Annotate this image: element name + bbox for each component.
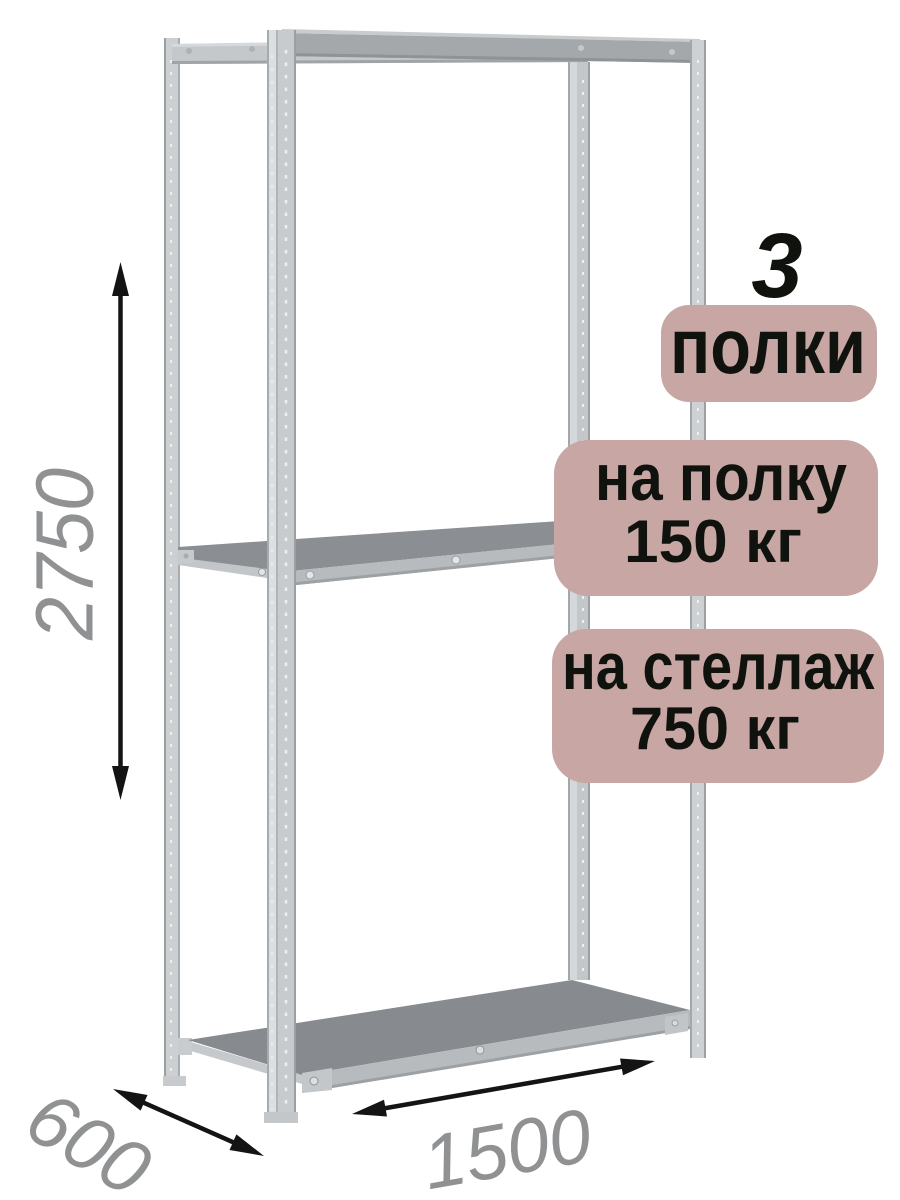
svg-text:на стеллаж: на стеллаж — [562, 629, 875, 703]
svg-text:2750: 2750 — [20, 468, 111, 641]
svg-text:на полку: на полку — [595, 440, 847, 514]
svg-text:150 кг: 150 кг — [624, 508, 802, 575]
svg-text:полки: полки — [670, 302, 866, 390]
svg-text:750 кг: 750 кг — [630, 695, 800, 762]
